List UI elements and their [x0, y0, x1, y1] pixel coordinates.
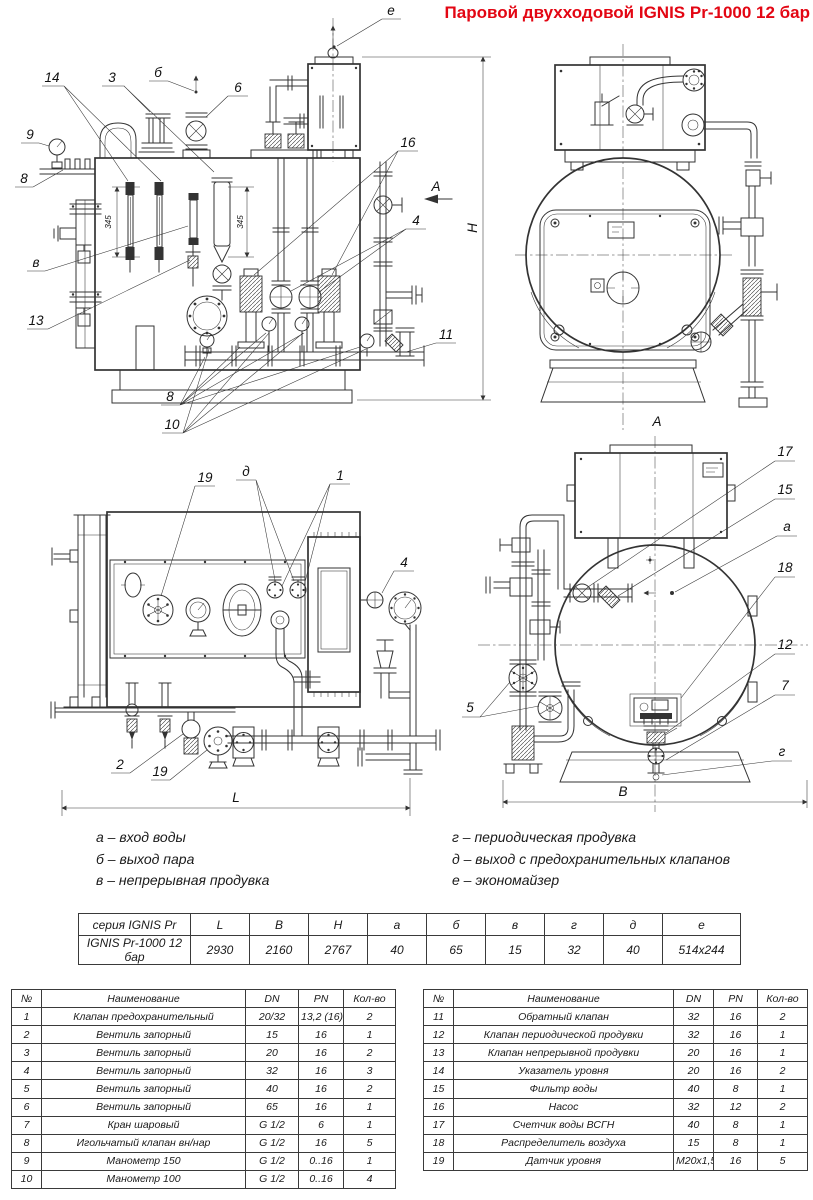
cell: 16	[424, 1098, 454, 1116]
cell: 12	[424, 1026, 454, 1044]
cell: 65	[427, 936, 486, 965]
col-header: B	[250, 914, 309, 936]
cell: Вентиль запорный	[42, 1080, 246, 1098]
cell: 1	[758, 1080, 808, 1098]
cell: 12	[714, 1098, 758, 1116]
cell: 14	[424, 1062, 454, 1080]
right-piping-column	[374, 162, 422, 360]
cell: 1	[758, 1026, 808, 1044]
table-row: 17Счетчик воды ВСГН4081	[424, 1116, 808, 1134]
callout-14: 14	[44, 70, 59, 85]
cell: 5	[12, 1080, 42, 1098]
callout-15: 15	[777, 482, 793, 497]
cell: Манометр 150	[42, 1152, 246, 1170]
col-header: DN	[674, 990, 714, 1008]
cell: M20x1,5	[674, 1152, 714, 1170]
cell: 16	[714, 1008, 758, 1026]
legend-item-v: в – непрерывная продувка	[96, 870, 269, 892]
col-header: д	[604, 914, 663, 936]
table-row: 12Клапан периодической продувки32161	[424, 1026, 808, 1044]
bottom-manifold	[182, 712, 440, 774]
callout-4b: 4	[400, 555, 408, 570]
legend-item-d: д – выход с предохранительных клапанов	[452, 849, 730, 871]
cell: 8	[12, 1134, 42, 1152]
cell: 65	[246, 1098, 299, 1116]
col-header: а	[368, 914, 427, 936]
table-row: 19Датчик уровняM20x1,5165	[424, 1152, 808, 1170]
cell: 16	[714, 1062, 758, 1080]
col-header: г	[545, 914, 604, 936]
callout-v: в	[32, 255, 39, 270]
parts-table-left: № Наименование DN PN Кол-во 1Клапан пред…	[11, 989, 396, 1189]
cell: 2	[12, 1026, 42, 1044]
economizer-side	[308, 18, 360, 162]
cell: 10	[12, 1170, 42, 1188]
table-row: 5Вентиль запорный40162	[12, 1080, 396, 1098]
callout-7: 7	[781, 678, 789, 693]
cell: 1	[758, 1134, 808, 1152]
cell: Вентиль запорный	[42, 1098, 246, 1116]
callout-11: 11	[439, 327, 453, 342]
cell: Клапан периодической продувки	[454, 1026, 674, 1044]
dimensions-table: серия IGNIS Pr L B H а б в г д е IGNIS P…	[78, 913, 741, 965]
cell: 32	[246, 1062, 299, 1080]
cell: 13	[424, 1044, 454, 1062]
cell: Игольчатый клапан вн/нар	[42, 1134, 246, 1152]
right-valve-gauge	[360, 592, 421, 736]
cell: 2930	[191, 936, 250, 965]
cell: 3	[344, 1062, 396, 1080]
cell: G 1/2	[246, 1116, 299, 1134]
col-header: в	[486, 914, 545, 936]
cell: 32	[674, 1026, 714, 1044]
col-header: е	[663, 914, 741, 936]
callout-5: 5	[466, 700, 474, 715]
cell: 2	[344, 1008, 396, 1026]
cell: 16	[299, 1134, 344, 1152]
callout-16: 16	[400, 135, 416, 150]
callout-2: 2	[115, 757, 124, 772]
cell: 2	[344, 1080, 396, 1098]
cell: 1	[758, 1116, 808, 1134]
cell: 1	[758, 1044, 808, 1062]
cell: 15	[486, 936, 545, 965]
cell: Насос	[454, 1098, 674, 1116]
cell: 16	[299, 1080, 344, 1098]
cell: 4	[12, 1062, 42, 1080]
table-row: 2Вентиль запорный15161	[12, 1026, 396, 1044]
cell: 20/32	[246, 1008, 299, 1026]
cell: Клапан непрерывной продувки	[454, 1044, 674, 1062]
cell: 2	[758, 1008, 808, 1026]
table-row: 3Вентиль запорный20162	[12, 1044, 396, 1062]
economizer-rear	[567, 445, 735, 568]
cell: 2160	[250, 936, 309, 965]
cell: 15	[424, 1080, 454, 1098]
front-right-piping	[691, 162, 777, 407]
blowdown-cluster	[630, 694, 681, 780]
cell: Счетчик воды ВСГН	[454, 1116, 674, 1134]
steam-valves-top	[100, 76, 317, 158]
view-side-left-drawing: H А 345 345 14 3 б 6 е 9 8 в 13 8 10 16 …	[0, 0, 500, 445]
cell: IGNIS Pr-1000 12 бар	[79, 936, 191, 965]
cell: 514x244	[663, 936, 741, 965]
cell: 15	[246, 1026, 299, 1044]
cell: Датчик уровня	[454, 1152, 674, 1170]
table-row: 15Фильтр воды4081	[424, 1080, 808, 1098]
cell: Обратный клапан	[454, 1008, 674, 1026]
cell: Манометр 100	[42, 1170, 246, 1188]
down-pipe	[276, 629, 320, 736]
col-header: L	[191, 914, 250, 936]
callout-a: а	[783, 519, 791, 534]
cell: 19	[424, 1152, 454, 1170]
col-header: Наименование	[454, 990, 674, 1008]
cell: 16	[299, 1062, 344, 1080]
level-gauges	[112, 178, 254, 300]
cell: 16	[714, 1026, 758, 1044]
callout-13: 13	[28, 313, 44, 328]
callout-g: г	[779, 744, 786, 759]
cell: 8	[714, 1080, 758, 1098]
front-door-panel	[110, 560, 306, 658]
cell: Распределитель воздуха	[454, 1134, 674, 1152]
callout-3: 3	[108, 70, 116, 85]
callout-10: 10	[164, 417, 180, 432]
col-header: H	[309, 914, 368, 936]
dim-l-label: L	[232, 790, 240, 805]
parts-left-header-row: № Наименование DN PN Кол-во	[12, 990, 396, 1008]
view-front-drawing: А	[495, 30, 813, 440]
dimension-L: L	[62, 778, 410, 816]
cell: 16	[714, 1152, 758, 1170]
cell: 16	[299, 1026, 344, 1044]
col-header: PN	[714, 990, 758, 1008]
cell: Вентиль запорный	[42, 1044, 246, 1062]
cell: 16	[714, 1044, 758, 1062]
cell: Вентиль запорный	[42, 1062, 246, 1080]
cell: 1	[12, 1008, 42, 1026]
col-header: Кол-во	[758, 990, 808, 1008]
col-header: PN	[299, 990, 344, 1008]
callout-e: е	[387, 3, 395, 18]
cell: G 1/2	[246, 1152, 299, 1170]
cell: Вентиль запорный	[42, 1026, 246, 1044]
dim-h-label: H	[465, 223, 480, 233]
table-row: 9Манометр 150G 1/20..161	[12, 1152, 396, 1170]
cell: 1	[344, 1026, 396, 1044]
door-bolts	[551, 215, 699, 345]
cell: 0..16	[299, 1170, 344, 1188]
cell: 18	[424, 1134, 454, 1152]
callout-18: 18	[777, 560, 793, 575]
legend-item-g: г – периодическая продувка	[452, 827, 730, 849]
cell: 6	[299, 1116, 344, 1134]
cell: 1	[344, 1152, 396, 1170]
manometer-150	[40, 139, 95, 174]
cell: 2	[758, 1098, 808, 1116]
cell: 15	[674, 1134, 714, 1152]
legend-left: а – вход воды б – выход пара в – непреры…	[96, 827, 269, 892]
cell: 40	[674, 1116, 714, 1134]
legend-right: г – периодическая продувка д – выход с п…	[452, 827, 730, 892]
left-piping-column-rear	[486, 515, 580, 773]
cell: Клапан предохранительный	[42, 1008, 246, 1026]
parts-table-right: № Наименование DN PN Кол-во 11Обратный к…	[423, 989, 808, 1171]
cell: 7	[12, 1116, 42, 1134]
dimensions-header-row: серия IGNIS Pr L B H а б в г д е	[79, 914, 741, 936]
dim-345-right: 345	[236, 215, 245, 229]
col-header: серия IGNIS Pr	[79, 914, 191, 936]
left-frame-and-pipe	[51, 515, 235, 748]
col-header: б	[427, 914, 486, 936]
cell: 2	[758, 1062, 808, 1080]
callout-19: 19	[197, 470, 213, 485]
cell: 0..16	[299, 1152, 344, 1170]
cell: 32	[545, 936, 604, 965]
cell: 5	[758, 1152, 808, 1170]
col-header: Кол-во	[344, 990, 396, 1008]
economizer-side-right	[308, 532, 360, 697]
cell: 20	[246, 1044, 299, 1062]
cell: 16	[299, 1044, 344, 1062]
cell: 2	[344, 1044, 396, 1062]
cell: 2767	[309, 936, 368, 965]
cell: 16	[299, 1098, 344, 1116]
callout-9: 9	[26, 127, 34, 142]
callout-b: б	[154, 65, 162, 80]
col-header: DN	[246, 990, 299, 1008]
table-row: 7Кран шаровыйG 1/261	[12, 1116, 396, 1134]
cell: Фильтр воды	[454, 1080, 674, 1098]
cell: G 1/2	[246, 1170, 299, 1188]
drawing-sheet: { "title": "Паровой двухходовой IGNIS Pr…	[0, 0, 813, 1200]
cell: 40	[368, 936, 427, 965]
parts-right-header-row: № Наименование DN PN Кол-во	[424, 990, 808, 1008]
view-side-right-drawing: L 19 д 1 4 2 19	[30, 440, 490, 830]
cell: 20	[674, 1062, 714, 1080]
callout-d: д	[242, 464, 250, 479]
legend-item-a: а – вход воды	[96, 827, 269, 849]
economizer-front	[555, 57, 757, 170]
cell: 32	[674, 1008, 714, 1026]
table-row: 18Распределитель воздуха1581	[424, 1134, 808, 1152]
cell: 4	[344, 1170, 396, 1188]
callout-1: 1	[336, 468, 344, 483]
cell: 20	[674, 1044, 714, 1062]
table-row: 8Игольчатый клапан вн/нарG 1/2165	[12, 1134, 396, 1152]
table-row: IGNIS Pr-1000 12 бар29302160276740651532…	[79, 936, 741, 965]
table-row: 13Клапан непрерывной продувки20161	[424, 1044, 808, 1062]
dim-345-left: 345	[104, 215, 113, 229]
callout-6: 6	[234, 80, 242, 95]
col-header: Наименование	[42, 990, 246, 1008]
view-a-title: А	[651, 414, 661, 429]
col-header: №	[424, 990, 454, 1008]
cell: 11	[424, 1008, 454, 1026]
callout-8b: 8	[166, 389, 174, 404]
col-header: №	[12, 990, 42, 1008]
table-row: 1Клапан предохранительный20/3213,2 (16)2	[12, 1008, 396, 1026]
cell: 8	[714, 1116, 758, 1134]
cell: 8	[714, 1134, 758, 1152]
callout-19b: 19	[152, 764, 168, 779]
cell: 1	[344, 1098, 396, 1116]
callout-17: 17	[777, 444, 793, 459]
cell: 17	[424, 1116, 454, 1134]
cell: 3	[12, 1044, 42, 1062]
callout-8: 8	[20, 171, 28, 186]
callout-12: 12	[777, 637, 793, 652]
cell: G 1/2	[246, 1134, 299, 1152]
legend-item-e: е – экономайзер	[452, 870, 730, 892]
cell: 40	[246, 1080, 299, 1098]
cell: 32	[674, 1098, 714, 1116]
table-row: 16Насос32122	[424, 1098, 808, 1116]
dim-b-label: В	[618, 784, 627, 799]
table-row: 14Указатель уровня20162	[424, 1062, 808, 1080]
table-row: 10Манометр 100G 1/20..164	[12, 1170, 396, 1188]
cell: 13,2 (16)	[299, 1008, 344, 1026]
cell: 9	[12, 1152, 42, 1170]
cell: Указатель уровня	[454, 1062, 674, 1080]
view-rear-drawing: В 17 15 а 18 12 7 г 5	[460, 430, 813, 820]
table-row: 4Вентиль запорный32163	[12, 1062, 396, 1080]
rear-door-fittings	[54, 200, 101, 348]
legend-item-b: б – выход пара	[96, 849, 269, 871]
cell: 5	[344, 1134, 396, 1152]
callout-4: 4	[412, 213, 420, 228]
cell: 6	[12, 1098, 42, 1116]
view-a-letter: А	[430, 179, 440, 194]
table-row: 6Вентиль запорный65161	[12, 1098, 396, 1116]
cell: Кран шаровый	[42, 1116, 246, 1134]
table-row: 11Обратный клапан32162	[424, 1008, 808, 1026]
cell: 40	[604, 936, 663, 965]
view-a-arrow: А	[424, 179, 452, 204]
cell: 40	[674, 1080, 714, 1098]
cell: 1	[344, 1116, 396, 1134]
water-inlet-run	[564, 584, 674, 608]
